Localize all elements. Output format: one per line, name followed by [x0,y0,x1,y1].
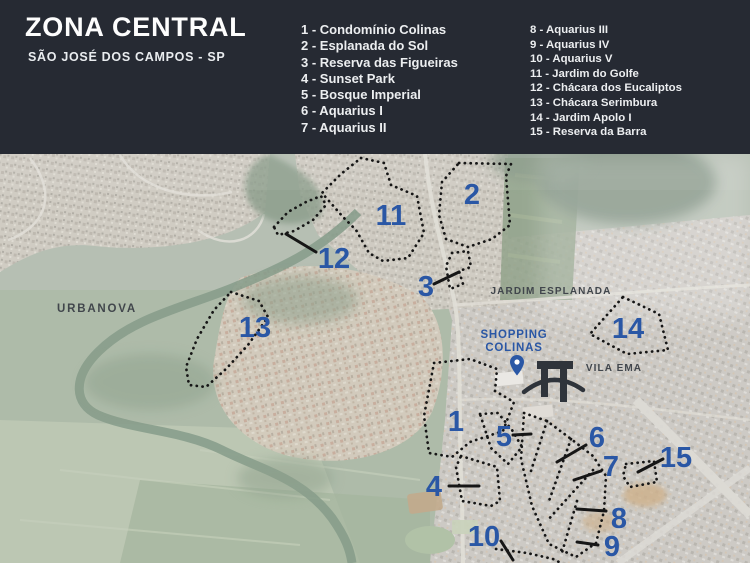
label-shopping-colinas-line1: SHOPPING [480,329,547,341]
map-number-3: 3 [418,271,434,303]
map-number-5: 5 [496,421,512,453]
legend-item: 8 - Aquarius III [530,23,682,38]
legend-column-1: 1 - Condomínio Colinas2 - Esplanada do S… [301,22,458,136]
map-number-10: 10 [468,521,500,553]
leader-line-8 [577,509,606,511]
legend-item: 7 - Aquarius II [301,120,458,136]
map-number-14: 14 [612,313,644,345]
legend-item: 9 - Aquarius IV [530,38,682,53]
map-number-2: 2 [464,179,480,211]
label-urbanova: URBANOVA [57,303,137,315]
map-number-15: 15 [660,442,692,474]
legend-item: 6 - Aquarius I [301,103,458,119]
map-number-11: 11 [376,200,407,232]
page-subtitle: SÃO JOSÉ DOS CAMPOS - SP [28,50,247,64]
legend-item: 2 - Esplanada do Sol [301,38,458,54]
map-image: URBANOVA JARDIM ESPLANADA VILA EMA SHOPP… [0,154,750,563]
legend-item: 13 - Chácara Serimbura [530,96,682,111]
map-number-9: 9 [604,531,620,563]
map-number-4: 4 [426,471,442,503]
legend-item: 3 - Reserva das Figueiras [301,55,458,71]
label-jardim-esplanada: JARDIM ESPLANADA [491,286,612,297]
header: ZONA CENTRAL SÃO JOSÉ DOS CAMPOS - SP 1 … [0,0,750,154]
title-block: ZONA CENTRAL SÃO JOSÉ DOS CAMPOS - SP [25,12,247,64]
legend-column-2: 8 - Aquarius III9 - Aquarius IV10 - Aqua… [530,23,682,140]
label-vila-ema: VILA EMA [586,363,642,374]
map-number-12: 12 [318,243,350,275]
legend-item: 15 - Reserva da Barra [530,125,682,140]
leader-line-5 [513,434,531,435]
legend-item: 14 - Jardim Apolo I [530,111,682,126]
legend-item: 10 - Aquarius V [530,52,682,67]
legend-item: 12 - Chácara dos Eucaliptos [530,81,682,96]
map-number-1: 1 [448,406,464,438]
legend-item: 11 - Jardim do Golfe [530,67,682,82]
legend-item: 5 - Bosque Imperial [301,87,458,103]
page-title: ZONA CENTRAL [25,12,247,43]
map-number-13: 13 [239,312,271,344]
legend-item: 4 - Sunset Park [301,71,458,87]
map-number-6: 6 [589,422,605,454]
map-number-7: 7 [603,451,619,483]
legend-item: 1 - Condomínio Colinas [301,22,458,38]
label-shopping-colinas-line2: COLINAS [485,342,542,354]
